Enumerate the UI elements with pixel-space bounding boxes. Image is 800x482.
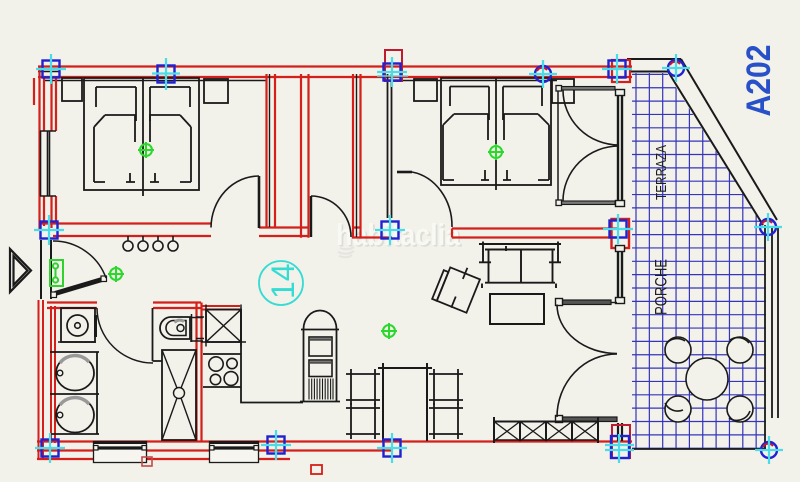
svg-text:TERRAZA: TERRAZA [653, 145, 670, 200]
svg-text:A202: A202 [740, 45, 778, 117]
svg-text:14: 14 [265, 263, 301, 299]
svg-text:PORCHE: PORCHE [653, 259, 671, 315]
